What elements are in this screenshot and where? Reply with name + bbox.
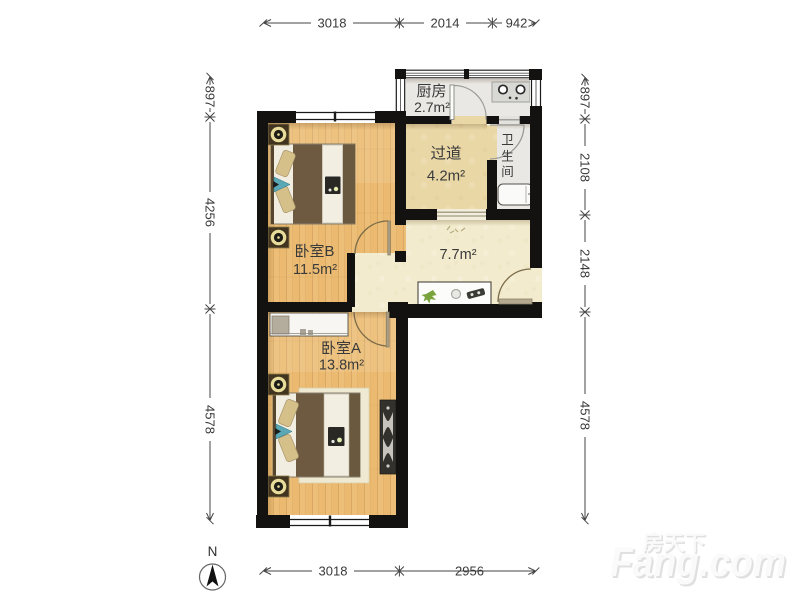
- svg-text:N: N: [208, 544, 218, 559]
- svg-text:间: 间: [501, 165, 514, 179]
- svg-text:卧室A: 卧室A: [321, 340, 361, 357]
- svg-text:4.2m²: 4.2m²: [427, 168, 465, 185]
- svg-text:13.8m²: 13.8m²: [319, 358, 364, 374]
- svg-text:11.5m²: 11.5m²: [293, 262, 337, 278]
- svg-text:房天下: 房天下: [643, 531, 706, 555]
- svg-text:4256: 4256: [203, 198, 218, 227]
- svg-text:4578: 4578: [203, 405, 218, 434]
- svg-text:3018: 3018: [319, 564, 348, 579]
- svg-text:2108: 2108: [578, 153, 593, 182]
- svg-text:942: 942: [506, 16, 528, 31]
- svg-text:厨房: 厨房: [416, 83, 446, 100]
- svg-text:2.7m²: 2.7m²: [414, 99, 450, 115]
- svg-text:过道: 过道: [430, 145, 461, 163]
- svg-text:2014: 2014: [431, 16, 460, 31]
- svg-text:2148: 2148: [578, 249, 593, 278]
- svg-text:897: 897: [578, 87, 593, 109]
- svg-text:卫: 卫: [501, 133, 514, 147]
- svg-text:7.7m²: 7.7m²: [439, 247, 476, 263]
- svg-text:生: 生: [501, 150, 514, 164]
- svg-text:3018: 3018: [318, 16, 347, 31]
- svg-text:897: 897: [203, 86, 218, 108]
- svg-text:2956: 2956: [455, 564, 484, 579]
- svg-text:卧室B: 卧室B: [294, 243, 334, 260]
- svg-text:4578: 4578: [578, 401, 593, 430]
